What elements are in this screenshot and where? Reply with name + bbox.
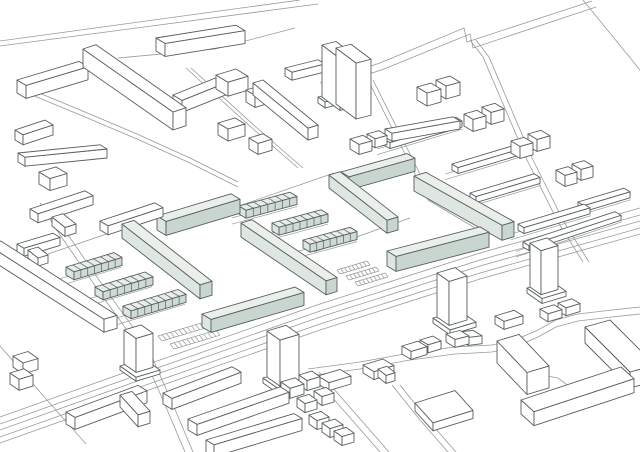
building-front-face — [136, 333, 153, 372]
building-front-face — [356, 59, 371, 119]
site-plan-canvas — [0, 0, 640, 452]
axonometric-site-plan — [0, 0, 640, 452]
building-end-face — [437, 273, 449, 325]
building-end-face — [530, 243, 541, 295]
building-front-face — [541, 246, 558, 295]
building-front-face — [449, 276, 467, 325]
